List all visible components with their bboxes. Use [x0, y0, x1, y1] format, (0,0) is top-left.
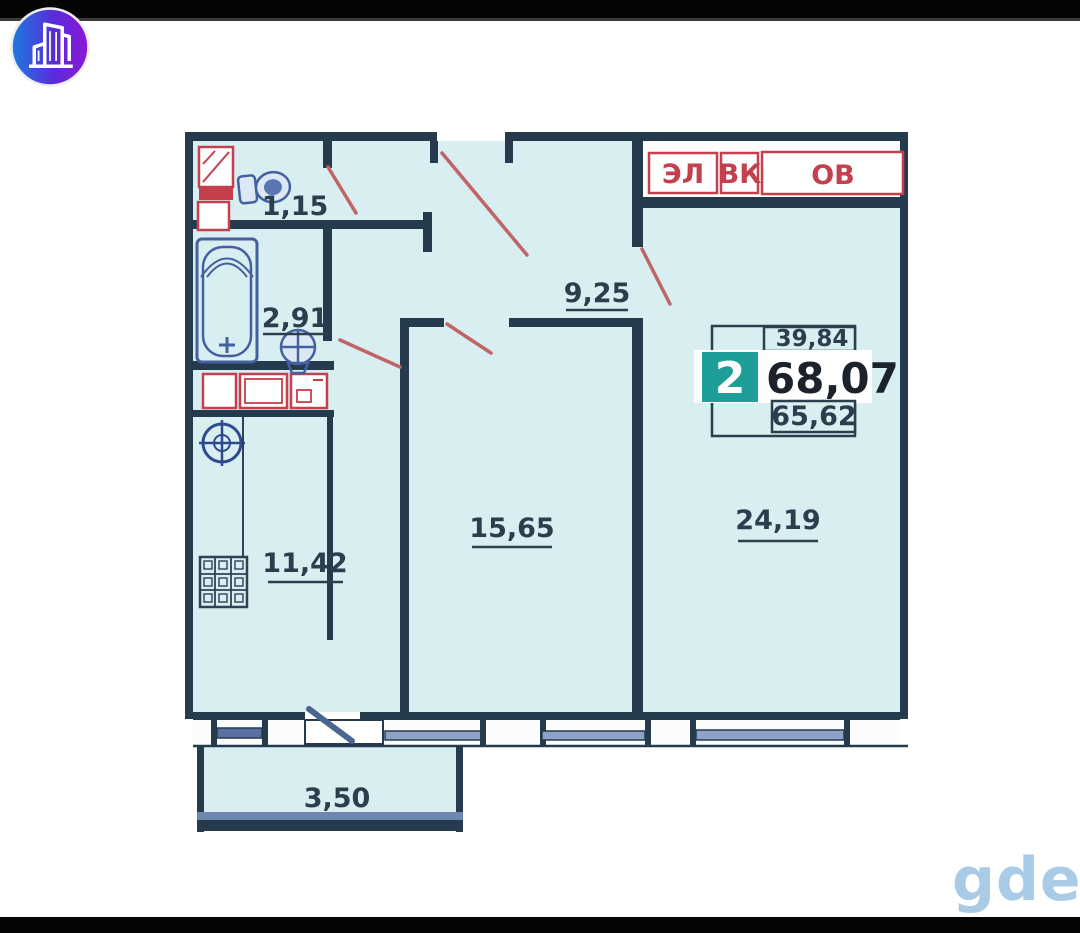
bedroom-window-2	[542, 731, 645, 740]
kitchen-window	[217, 728, 262, 738]
room-label-wc: 1,15	[262, 191, 329, 222]
floor-plan: ЭЛ ВК ОВ 39,84 2 68,07 65,62 1,15 2,91 9…	[180, 120, 920, 850]
room-label-balcony: 3,50	[304, 783, 371, 814]
room-label-kitchen: 11,42	[262, 548, 347, 579]
room-label-hallway: 9,25	[564, 278, 631, 309]
rooms-count-value: 2	[715, 353, 746, 404]
floor-fill	[193, 141, 900, 824]
area-without-balcony-value: 65,62	[771, 401, 856, 432]
room-label-bedroom: 15,65	[469, 513, 554, 544]
panel-hatch	[199, 187, 233, 200]
washer-icon	[203, 374, 236, 408]
utility-label-vk: ВК	[719, 159, 762, 190]
gde-watermark: gde	[952, 845, 1080, 915]
buildings-logo-icon	[12, 9, 89, 86]
utility-label-ov: ОВ	[811, 160, 855, 191]
total-area-value: 68,07	[766, 354, 899, 403]
bottom-black-bar	[0, 917, 1080, 933]
utility-label-el: ЭЛ	[662, 159, 704, 190]
living-area-value: 39,84	[776, 326, 849, 352]
living-room-window	[696, 730, 844, 740]
site-logo	[8, 5, 92, 89]
room-label-living-room: 24,19	[735, 505, 820, 536]
room-label-bathroom: 2,91	[262, 303, 329, 334]
top-black-bar	[0, 0, 1080, 21]
utility-risers: ЭЛ ВК ОВ	[649, 152, 903, 194]
bedroom-window	[385, 731, 482, 740]
